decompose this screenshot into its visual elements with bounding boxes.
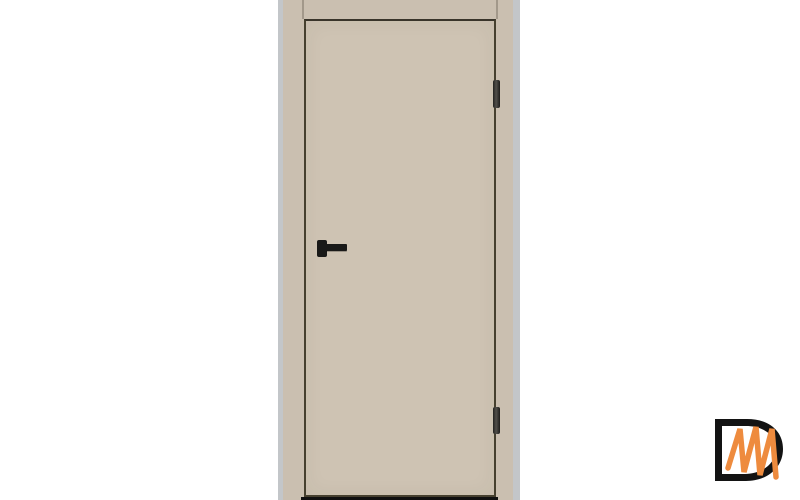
door-hinge-top bbox=[493, 80, 500, 108]
product-photo bbox=[0, 0, 800, 500]
door-handle-lever bbox=[326, 244, 347, 251]
door-leaf bbox=[304, 19, 496, 497]
frame-outer-edge-right bbox=[513, 0, 520, 500]
frame-joint-line-right bbox=[496, 0, 498, 19]
brand-logo-dm-icon bbox=[700, 400, 800, 500]
frame-joint-line-left bbox=[302, 0, 304, 19]
door-hinge-bottom bbox=[493, 407, 500, 434]
